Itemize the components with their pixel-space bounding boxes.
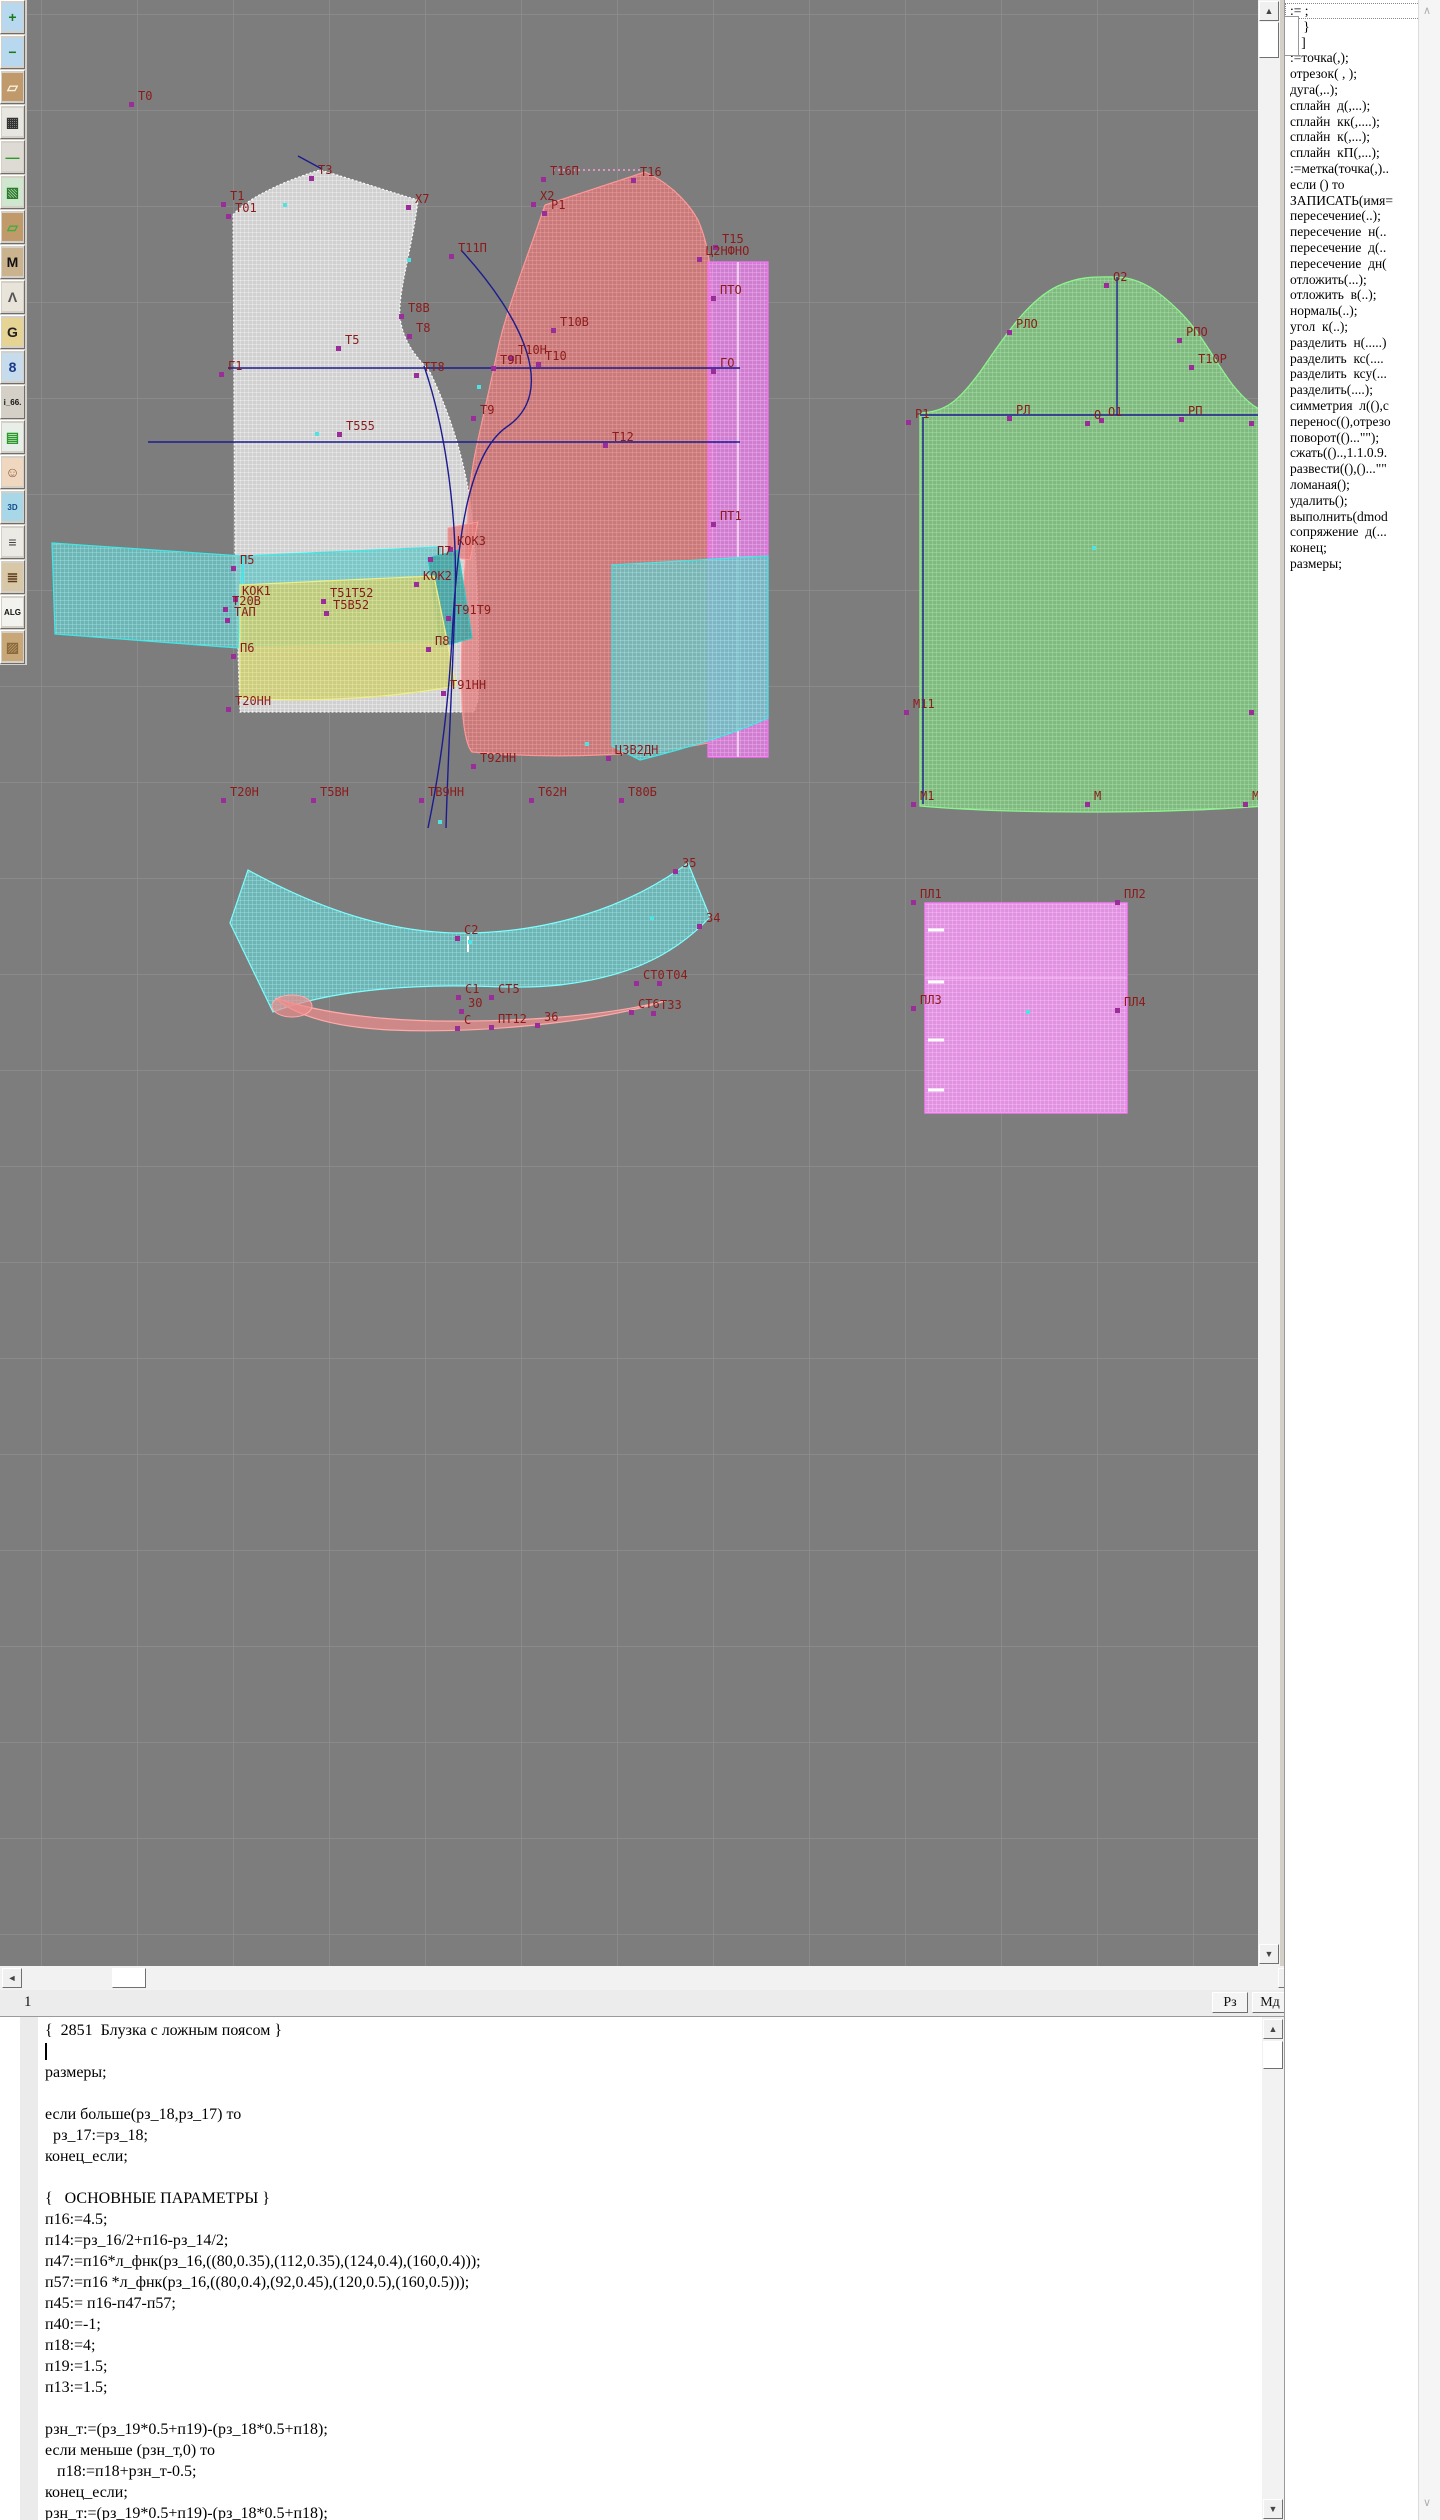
pattern-g-icon: G [2, 318, 23, 346]
point-marker[interactable] [441, 691, 446, 696]
scroll-left-button[interactable]: ◄ [2, 1968, 22, 1988]
code-line[interactable]: { 2851 Блузка с ложным поясом } [45, 2020, 481, 2041]
piece-cuff-band[interactable] [52, 543, 243, 648]
point-marker[interactable] [711, 296, 716, 301]
piece-preview-icon[interactable]: ▱ [0, 70, 25, 104]
scroll-down-button[interactable]: ▼ [1259, 1944, 1279, 1964]
control-point[interactable] [1026, 1010, 1030, 1014]
list-icon[interactable]: ≡ [0, 525, 25, 559]
control-point[interactable] [283, 203, 287, 207]
point-label: Х7 [415, 193, 429, 205]
point-label: М1 [920, 790, 934, 802]
point-label: РЛО [1016, 318, 1038, 330]
piece-contour-icon[interactable]: ▱ [0, 210, 25, 244]
point-marker[interactable] [606, 756, 611, 761]
point-label: 36 [544, 1011, 558, 1023]
point-label: МР [1252, 790, 1258, 802]
point-label: СТ6 [638, 998, 660, 1010]
point-label: С2 [464, 924, 478, 936]
control-point[interactable] [468, 940, 472, 944]
point-label: Т10Р [1198, 353, 1227, 365]
code-line[interactable]: п57:=п16 *л_фнк(рз_16,((80,0.4),(92,0.45… [45, 2272, 481, 2293]
point-marker[interactable] [697, 924, 702, 929]
table-icon: ▤ [2, 423, 23, 451]
command-item[interactable]: сжать(()..,1.1.0.9. [1285, 445, 1440, 461]
point-label: ПТ12 [498, 1013, 527, 1025]
pattern-g-icon[interactable]: G [0, 315, 25, 349]
point-marker[interactable] [629, 1010, 634, 1015]
point-label: Т9 [480, 404, 494, 416]
point-marker[interactable] [1085, 421, 1090, 426]
point-marker[interactable] [603, 443, 608, 448]
code-line[interactable]: рз_17:=рз_18; [45, 2125, 481, 2146]
code-line[interactable]: п18:=п18+рзн_т-0.5; [45, 2461, 481, 2482]
point-marker[interactable] [337, 432, 342, 437]
point-marker[interactable] [1104, 283, 1109, 288]
material-icon: ▨ [2, 633, 23, 661]
point-marker[interactable] [221, 798, 226, 803]
command-item[interactable]: [ ] [1285, 35, 1440, 51]
point-label: Г1 [228, 360, 242, 372]
i66-button[interactable]: i_66. [0, 385, 25, 419]
point-marker[interactable] [231, 654, 236, 659]
point-label: Ц3В2ДН [615, 744, 658, 756]
command-item[interactable]: удалить(); [1285, 493, 1440, 509]
point-marker[interactable] [1249, 421, 1254, 426]
command-item[interactable]: :=точка(,); [1285, 50, 1440, 66]
point-label: ПЛ1 [920, 888, 942, 900]
point-marker[interactable] [446, 616, 451, 621]
code-line[interactable] [45, 2041, 481, 2062]
command-item[interactable]: симметрия л((),с [1285, 398, 1440, 414]
point-label: 34 [706, 912, 720, 924]
point-label: Р1 [915, 408, 929, 420]
point-marker[interactable] [911, 802, 916, 807]
scroll-up-button[interactable]: ▲ [1259, 1, 1279, 21]
point-marker[interactable] [551, 328, 556, 333]
hscroll-thumb[interactable] [112, 1968, 146, 1988]
point-marker[interactable] [419, 798, 424, 803]
point-marker[interactable] [455, 1026, 460, 1031]
zoom-out-icon: − [2, 38, 23, 66]
point-marker[interactable] [406, 205, 411, 210]
point-label: ГО [720, 357, 734, 369]
point-label: Т8В [408, 302, 430, 314]
pattern-m-icon[interactable]: M [0, 245, 25, 279]
grid-icon: ▦ [2, 108, 23, 136]
command-item[interactable]: разделить н(.....) [1285, 335, 1440, 351]
point-label: ТТ8 [423, 361, 445, 373]
point-marker[interactable] [324, 611, 329, 616]
point-marker[interactable] [399, 314, 404, 319]
undercollar-end [272, 995, 312, 1017]
point-marker[interactable] [321, 599, 326, 604]
point-marker[interactable] [1177, 338, 1182, 343]
i66-button: i_66. [2, 388, 23, 416]
point-label: Т33 [660, 999, 682, 1011]
point-label: Т62Н [538, 786, 567, 798]
point-marker[interactable] [904, 710, 909, 715]
text-caret [45, 2043, 47, 2060]
code-line[interactable]: п40:=-1; [45, 2314, 481, 2335]
command-item[interactable]: отложить(...); [1285, 272, 1440, 288]
point-label: Т04 [666, 969, 688, 981]
point-label: Р1 [551, 199, 565, 211]
point-label: М [1094, 790, 1101, 802]
point-label: Т80Б [628, 786, 657, 798]
point-label: ТАП [234, 606, 256, 618]
point-label: ПТО [720, 284, 742, 296]
point-marker[interactable] [456, 995, 461, 1000]
point-marker[interactable] [911, 1006, 916, 1011]
blueprint-icon[interactable]: 8 [0, 350, 25, 384]
point-label: Т10 [545, 350, 567, 362]
code-line[interactable]: п19:=1.5; [45, 2356, 481, 2377]
status-line-number: 1 [24, 1994, 32, 2011]
point-marker[interactable] [1243, 802, 1248, 807]
command-item[interactable]: развести((),()..."" [1285, 461, 1440, 477]
piece-preview-icon: ▱ [2, 73, 23, 101]
point-label: РЛ [1016, 404, 1030, 416]
control-point[interactable] [315, 432, 319, 436]
command-item[interactable]: если () то [1285, 177, 1440, 193]
command-item[interactable]: перенос((),отрезо [1285, 414, 1440, 430]
point-label: Ц2НФНО [706, 245, 749, 257]
code-line[interactable]: п18:=4; [45, 2335, 481, 2356]
command-item[interactable]: разделить ксу(... [1285, 366, 1440, 382]
point-marker[interactable] [426, 647, 431, 652]
code-line[interactable]: п47:=п16*л_фнк(рз_16,((80,0.35),(112,0.3… [45, 2251, 481, 2272]
canvas-horizontal-scrollbar[interactable]: ◄ ► [0, 1966, 1302, 1990]
editor-scroll-thumb[interactable] [1263, 2041, 1283, 2069]
sketch-icon[interactable]: ▧ [0, 175, 25, 209]
zoom-in-icon: + [2, 3, 23, 31]
point-marker[interactable] [471, 416, 476, 421]
sketch-icon: ▧ [2, 178, 23, 206]
command-item[interactable]: ломаная(); [1285, 477, 1440, 493]
point-label: П8 [435, 635, 449, 647]
cad-window: { "window": {"title": "Грация САПР - кон… [0, 0, 1440, 2520]
point-label: Т01 [235, 202, 257, 214]
point-marker[interactable] [225, 618, 230, 623]
drafting-tools-icon: Λ [2, 283, 23, 311]
point-label: Т12 [612, 431, 634, 443]
point-label: П7 [437, 545, 451, 557]
command-item[interactable]: угол к(..); [1285, 319, 1440, 335]
point-marker[interactable] [1085, 802, 1090, 807]
command-item[interactable]: сплайн кП(,...); [1285, 145, 1440, 161]
code-line[interactable]: размеры; [45, 2062, 481, 2083]
point-marker[interactable] [1115, 1008, 1120, 1013]
command-item[interactable]: отложить в(..); [1285, 287, 1440, 303]
material-icon[interactable]: ▨ [0, 630, 25, 664]
command-item[interactable]: конец; [1285, 540, 1440, 556]
toolbar: +−▱▦—▧▱MΛG8i_66.▤☺3D≡≣ALG▨ [0, 0, 27, 665]
point-marker[interactable] [1007, 330, 1012, 335]
command-panel: := ;{ }[ ]:=точка(,);отрезок( , );дуга(,… [1284, 0, 1440, 2520]
command-list: := ;{ }[ ]:=точка(,);отрезок( , );дуга(,… [1285, 0, 1440, 572]
command-item[interactable]: :=метка(точка(,).. [1285, 161, 1440, 177]
editor-scroll-down-button[interactable]: ▼ [1263, 2499, 1283, 2519]
point-label: Т91Т9 [455, 604, 491, 616]
portrait-icon[interactable]: ☺ [0, 455, 25, 489]
point-label: КОК3 [457, 535, 486, 547]
point-marker[interactable] [428, 557, 433, 562]
point-label: Т8 [416, 322, 430, 334]
point-label: ПЛ2 [1124, 888, 1146, 900]
editor-scroll-up-button[interactable]: ▲ [1263, 2019, 1283, 2039]
point-marker[interactable] [311, 798, 316, 803]
point-label: О2 [1113, 271, 1127, 283]
3d-icon[interactable]: 3D [0, 490, 25, 524]
point-label: Т5 [345, 334, 359, 346]
3d-icon: 3D [2, 493, 23, 521]
point-label: Т16П [550, 165, 579, 177]
control-point[interactable] [407, 258, 411, 262]
code-line[interactable] [45, 2398, 481, 2419]
code-line[interactable]: { ОСНОВНЫЕ ПАРАМЕТРЫ } [45, 2188, 481, 2209]
blank-tool-box [1284, 16, 1299, 56]
point-marker[interactable] [414, 582, 419, 587]
point-marker[interactable] [697, 257, 702, 262]
alg-icon: ALG [2, 598, 23, 626]
point-marker[interactable] [711, 522, 716, 527]
point-marker[interactable] [226, 707, 231, 712]
segment-icon[interactable]: — [0, 140, 25, 174]
rz-button[interactable]: Рз [1212, 1992, 1248, 2013]
command-item[interactable]: пересечение дн( [1285, 256, 1440, 272]
algorithm-editor[interactable]: { 2851 Блузка с ложным поясом }размеры;е… [0, 2016, 1284, 2520]
zoom-in-icon[interactable]: + [0, 0, 25, 34]
point-marker[interactable] [651, 1011, 656, 1016]
canvas-vertical-scrollbar[interactable]: ▲ ▼ [1258, 0, 1280, 1966]
pattern-m-icon: M [2, 248, 23, 276]
point-label: ПЛ3 [920, 994, 942, 1006]
code-line[interactable] [45, 2083, 481, 2104]
command-item[interactable]: размеры; [1285, 556, 1440, 572]
pattern-geometry [0, 0, 1258, 1966]
point-marker[interactable] [529, 798, 534, 803]
code-line[interactable]: конец_если; [45, 2146, 481, 2167]
point-marker[interactable] [414, 373, 419, 378]
command-item[interactable]: дуга(,..); [1285, 82, 1440, 98]
control-point[interactable] [650, 916, 654, 920]
point-marker[interactable] [223, 607, 228, 612]
point-label: Т5В52 [333, 599, 369, 611]
books-icon[interactable]: ≣ [0, 560, 25, 594]
command-item[interactable]: разделить(....); [1285, 382, 1440, 398]
point-marker[interactable] [631, 178, 636, 183]
panel-scrollbar[interactable]: ∧ ∨ [1418, 0, 1440, 2520]
point-label: П6 [240, 642, 254, 654]
point-label: Т92НН [480, 752, 516, 764]
portrait-icon: ☺ [2, 458, 23, 486]
point-marker[interactable] [542, 211, 547, 216]
point-label: П5 [240, 554, 254, 566]
point-label: Т11П [458, 242, 487, 254]
point-label: Т0 [138, 90, 152, 102]
point-marker[interactable] [1007, 416, 1012, 421]
point-marker[interactable] [911, 900, 916, 905]
command-item[interactable]: ЗАПИСАТЬ(имя= [1285, 193, 1440, 209]
point-marker[interactable] [455, 936, 460, 941]
point-marker[interactable] [531, 202, 536, 207]
point-marker[interactable] [336, 346, 341, 351]
point-label: Т9П [500, 354, 522, 366]
point-label: Т10В [560, 316, 589, 328]
control-point[interactable] [585, 742, 589, 746]
drafting-tools-icon[interactable]: Λ [0, 280, 25, 314]
point-marker[interactable] [491, 366, 496, 371]
point-marker[interactable] [471, 764, 476, 769]
command-item[interactable]: пересечение(..); [1285, 208, 1440, 224]
point-label: Т91НН [450, 679, 486, 691]
point-marker[interactable] [906, 420, 911, 425]
point-label: О [1094, 409, 1101, 421]
control-point[interactable] [1092, 546, 1096, 550]
code-line[interactable]: если больше(рз_18,рз_17) то [45, 2104, 481, 2125]
command-item[interactable]: сопряжение д(... [1285, 524, 1440, 540]
point-marker[interactable] [1179, 417, 1184, 422]
piece-contour-icon: ▱ [2, 213, 23, 241]
md-button[interactable]: Мд [1252, 1992, 1288, 2013]
point-label: Т16 [640, 166, 662, 178]
list-icon: ≡ [2, 528, 23, 556]
point-marker[interactable] [449, 254, 454, 259]
editor-gutter [20, 2017, 38, 2520]
command-item[interactable]: отрезок( , ); [1285, 66, 1440, 82]
command-item[interactable]: сплайн д(,...); [1285, 98, 1440, 114]
point-label: Т20Н [230, 786, 259, 798]
point-marker[interactable] [1189, 365, 1194, 370]
point-marker[interactable] [634, 981, 639, 986]
point-label: Т10Н [518, 344, 547, 356]
point-label: СТ0 [643, 969, 665, 981]
command-item[interactable]: выполнить(dmod [1285, 509, 1440, 525]
point-label: С [464, 1014, 471, 1026]
code-line[interactable]: п45:= п16-п47-п57; [45, 2293, 481, 2314]
code-line[interactable]: если меньше (рзн_т,0) то [45, 2440, 481, 2461]
code-line[interactable]: конец_если; [45, 2482, 481, 2503]
code-line[interactable]: рзн_т:=(рз_19*0.5+п19)-(рз_18*0.5+п18); [45, 2419, 481, 2440]
point-marker[interactable] [226, 214, 231, 219]
point-label: С1 [465, 983, 479, 995]
point-label: Т3 [318, 164, 332, 176]
point-marker[interactable] [619, 798, 624, 803]
point-label: КОК2 [423, 570, 452, 582]
blueprint-icon: 8 [2, 353, 23, 381]
point-marker[interactable] [219, 372, 224, 377]
point-marker[interactable] [407, 334, 412, 339]
command-item[interactable]: сплайн кк(,....); [1285, 114, 1440, 130]
point-marker[interactable] [489, 995, 494, 1000]
panel-scroll-down-icon[interactable]: ∨ [1423, 2496, 1431, 2509]
editor-scrollbar[interactable]: ▲ ▼ [1262, 2017, 1284, 2520]
command-item[interactable]: нормаль(..); [1285, 303, 1440, 319]
point-marker[interactable] [535, 1023, 540, 1028]
point-marker[interactable] [1115, 900, 1120, 905]
command-item[interactable]: { } [1285, 19, 1440, 35]
editor-lines: { 2851 Блузка с ложным поясом }размеры;е… [45, 2020, 481, 2520]
point-label: О1 [1108, 406, 1122, 418]
point-marker[interactable] [541, 177, 546, 182]
point-label: РПО [1186, 326, 1208, 338]
point-marker[interactable] [536, 362, 541, 367]
pattern-canvas[interactable]: Т0Т1Т01Т3Х7Т11ПТ8ВТ8Т5ТТ8Г1Т555Т16ПТ16Х2… [0, 0, 1258, 1966]
code-line[interactable]: п16:=4.5; [45, 2209, 481, 2230]
point-label: ТВ9НН [428, 786, 464, 798]
vscroll-thumb[interactable] [1259, 22, 1279, 58]
code-line[interactable]: п13:=1.5; [45, 2377, 481, 2398]
point-marker[interactable] [129, 102, 134, 107]
zoom-out-icon[interactable]: − [0, 35, 25, 69]
panel-scroll-up-icon[interactable]: ∧ [1423, 4, 1431, 17]
segment-icon: — [2, 143, 23, 171]
point-label: М11 [913, 698, 935, 710]
books-icon: ≣ [2, 563, 23, 591]
point-label: ПЛ4 [1124, 996, 1146, 1008]
table-icon[interactable]: ▤ [0, 420, 25, 454]
control-point[interactable] [477, 385, 481, 389]
point-label: Т20НН [235, 695, 271, 707]
point-label: Т555 [346, 420, 375, 432]
point-marker[interactable] [1249, 710, 1254, 715]
command-item[interactable]: поворот(()...""); [1285, 430, 1440, 446]
command-item[interactable]: пересечение н(.. [1285, 224, 1440, 240]
piece-facing-rect[interactable] [925, 903, 1127, 1113]
command-item[interactable]: разделить кс(.... [1285, 351, 1440, 367]
code-line[interactable] [45, 2167, 481, 2188]
point-marker[interactable] [673, 869, 678, 874]
command-item[interactable]: пересечение д(.. [1285, 240, 1440, 256]
point-label: 35 [682, 857, 696, 869]
command-item[interactable]: := ; [1285, 3, 1440, 19]
point-label: СТ5 [498, 983, 520, 995]
point-marker[interactable] [489, 1025, 494, 1030]
code-line[interactable]: п14:=рз_16/2+п16-рз_14/2; [45, 2230, 481, 2251]
point-marker[interactable] [231, 566, 236, 571]
point-label: 30 [468, 997, 482, 1009]
point-label: РП [1188, 405, 1202, 417]
point-marker[interactable] [221, 202, 226, 207]
command-item[interactable]: сплайн к(,...); [1285, 129, 1440, 145]
point-label: Т5ВН [320, 786, 349, 798]
point-marker[interactable] [309, 176, 314, 181]
point-marker[interactable] [711, 369, 716, 374]
code-line[interactable]: рзн_т:=(рз_19*0.5+п19)-(рз_18*0.5+п18); [45, 2503, 481, 2520]
statusbar: 1 Рз Мд [0, 1990, 1302, 2016]
control-point[interactable] [438, 820, 442, 824]
point-label: ПТ1 [720, 510, 742, 522]
alg-icon[interactable]: ALG [0, 595, 25, 629]
grid-icon[interactable]: ▦ [0, 105, 25, 139]
